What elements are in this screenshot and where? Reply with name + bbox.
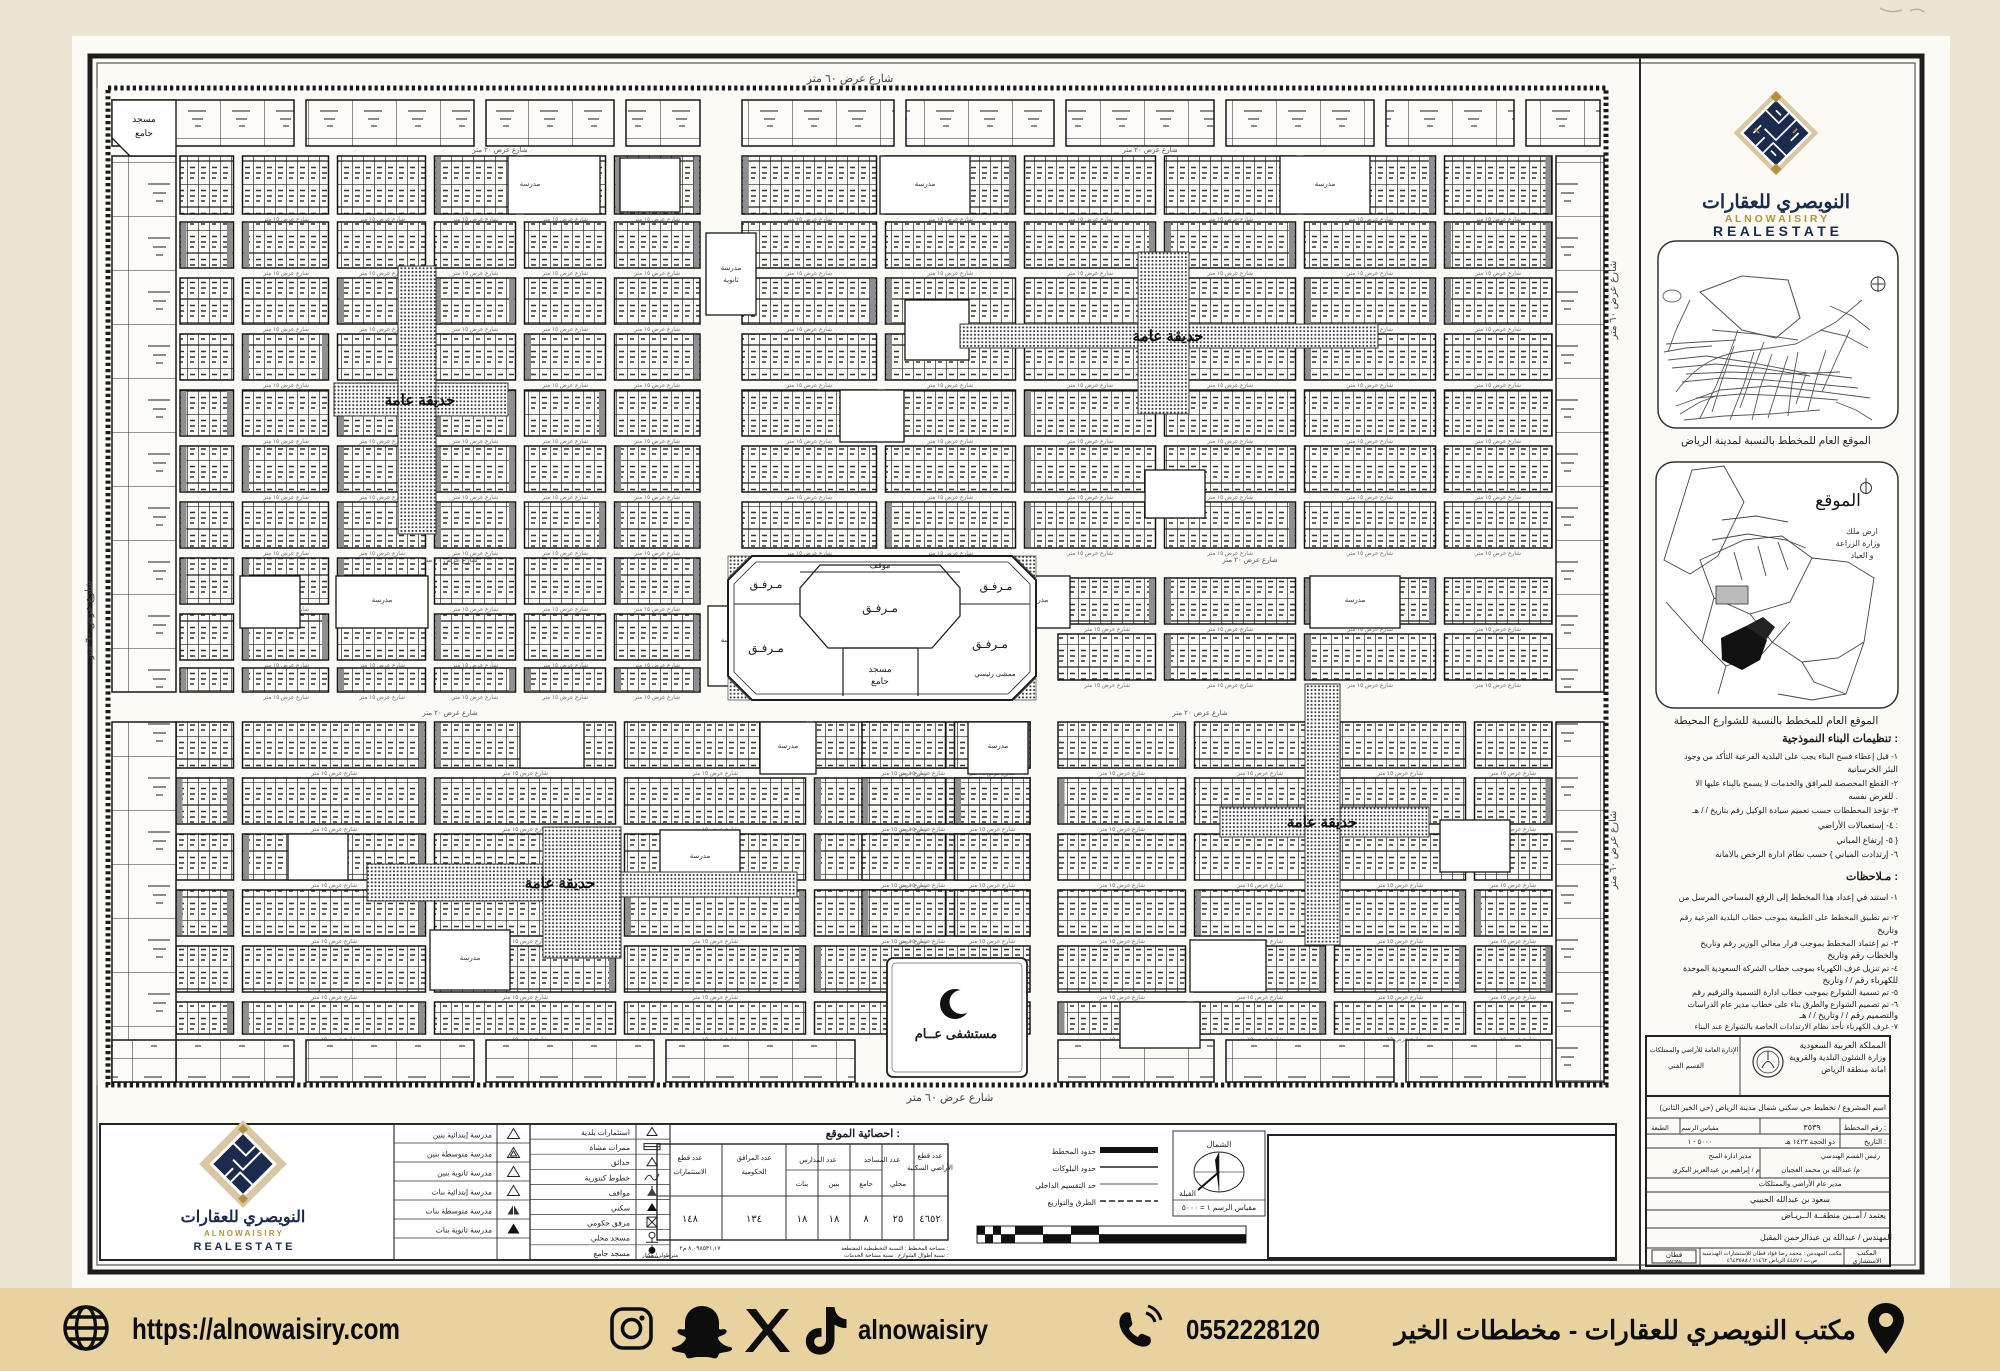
svg-text:شارع عرض ١٥ متر: شارع عرض ١٥ متر [541,326,588,333]
svg-text:شارع عرض ١٥ متر: شارع عرض ١٥ متر [1346,550,1393,557]
svg-text:الطبعة: الطبعة [1651,1124,1669,1132]
svg-text:١٣٤: ١٣٤ [746,1214,762,1225]
svg-text:شارع عرض ١٥ متر: شارع عرض ١٥ متر [633,382,680,389]
svg-text:احصائية الموقع :: احصائية الموقع : [826,1128,900,1140]
svg-text:مدرسة: مدرسة [690,853,711,860]
svg-text:مدرسة: مدرسة [1315,181,1336,188]
svg-text:شارع عرض ١٥ متر: شارع عرض ١٥ متر [1083,682,1130,689]
svg-text:٥٠٠٠ - ١: ٥٠٠٠ - ١ [1687,1139,1712,1146]
svg-text:شارع عرض ٦٠ متر: شارع عرض ٦٠ متر [906,1092,994,1104]
svg-text:شارع عرض ١٥ متر: شارع عرض ١٥ متر [451,270,498,277]
svg-text:٣- تؤخذ المخططات حسب تعميم سيا: ٣- تؤخذ المخططات حسب تعميم سيادة الوكيل … [1691,806,1898,815]
svg-text:وزارة الشئون البلدية والقروية: وزارة الشئون البلدية والقروية [1789,1053,1886,1062]
svg-text:عدد قطع: عدد قطع [678,1154,703,1162]
svg-text:مدرسة: مدرسة [460,955,481,962]
svg-text:حديقة عامة: حديقة عامة [385,392,456,409]
svg-text:مـرفـق: مـرفـق [750,579,783,591]
svg-text:شارع عرض ١٥ متر: شارع عرض ١٥ متر [785,494,832,501]
svg-text:شارع عرض ١٥ متر: شارع عرض ١٥ متر [451,438,498,445]
svg-text:مسجد: مسجد [132,114,156,124]
svg-text:شارع عرض ١٥ متر: شارع عرض ١٥ متر [358,550,405,557]
svg-text:شارع عرض ١٥ متر: شارع عرض ١٥ متر [451,494,498,501]
svg-text:الإدارة العامة للأراضي والممتل: الإدارة العامة للأراضي والممتلكات [1650,1045,1739,1054]
svg-text:شارع عرض ١٥ متر: شارع عرض ١٥ متر [1474,494,1521,501]
svg-text:شارع عرض ١٥ متر: شارع عرض ١٥ متر [1098,770,1145,777]
svg-text:شارع عرض ١٥ متر: شارع عرض ١٥ متر [691,938,738,945]
svg-text:شارع عرض ١٥ متر: شارع عرض ١٥ متر [1206,682,1253,689]
svg-text:حدود المخطط: حدود المخطط [1052,1147,1097,1156]
svg-text:القبلة: القبلة [1179,1189,1196,1198]
svg-text:ممرات مشاة: ممرات مشاة [589,1143,630,1152]
svg-text:الموقع: الموقع [1815,491,1861,511]
svg-text:شارع عرض ٢٠ متر: شارع عرض ٢٠ متر [421,709,477,717]
svg-text:للكهرباء رقم / / وتار: للكهرباء رقم / / وتاريخ [1822,975,1898,985]
svg-text:٨: ٨ [863,1214,869,1225]
svg-text:شارع عرض ١٥ متر: شارع عرض ١٥ متر [1098,938,1145,945]
svg-text:شارع عرض ١٥ متر: شارع عرض ١٥ متر [1376,770,1423,777]
svg-text:المهندس / عبدالله بن عبدالرحمن: المهندس / عبدالله بن عبدالرحمن المقبل [1760,1233,1892,1242]
svg-text:شارع عرض ١٥ متر: شارع عرض ١٥ متر [785,438,832,445]
svg-text:شارع عرض ١٥ متر: شارع عرض ١٥ متر [1236,994,1283,1001]
svg-text:مدرسة: مدرسة [778,743,799,750]
svg-text:شارع عرض ١٥ متر: شارع عرض ١٥ متر [1489,882,1536,889]
svg-text:شارع عرض ١٥ متر: شارع عرض ١٥ متر [880,882,927,889]
svg-text:شارع عرض ١٥ متر: شارع عرض ١٥ متر [1236,770,1283,777]
svg-text:حد التقسيم الداخلي: حد التقسيم الداخلي [1035,1181,1096,1190]
svg-text:شارع عرض ١٥ متر: شارع عرض ١٥ متر [262,270,309,277]
svg-text:مدرسة إبتدائية بنات: مدرسة إبتدائية بنات [431,1188,492,1197]
svg-text:شارع عرض ٢٠ متر: شارع عرض ٢٠ متر [471,146,527,154]
svg-text:بنات: بنات [796,1180,809,1188]
svg-text:و العياد: و العياد [1850,551,1873,560]
svg-text:٢٥: ٢٥ [893,1214,904,1225]
svg-text:المملكة العربية السعودية: المملكة العربية السعودية [1799,1040,1886,1051]
svg-text:اسم المشروع / تخطيط حي سكني شم: اسم المشروع / تخطيط حي سكني شمال مدينة ا… [1660,1103,1886,1112]
svg-text:شارع عرض ١٥ متر: شارع عرض ١٥ متر [451,550,498,557]
svg-text:شارع عرض ١٥ متر: شارع عرض ١٥ متر [633,438,680,445]
svg-text:شارع عرض ١٥ متر: شارع عرض ١٥ متر [1489,770,1536,777]
svg-text:٥- إرتفاع المباني }: ٥- إرتفاع المباني } [1836,835,1898,845]
svg-text:شارع عرض ١٥ متر: شارع عرض ١٥ متر [1346,438,1393,445]
svg-text:شارع عرض ١٥ متر: شارع عرض ١٥ متر [262,550,309,557]
svg-text:شارع عرض ١٥ متر: شارع عرض ١٥ متر [310,994,357,1001]
svg-text:ثانوية: ثانوية [723,276,738,284]
svg-text:حديقة عامة: حديقة عامة [525,875,596,892]
svg-text:مرفق حكومي: مرفق حكومي [587,1219,630,1228]
svg-text:٧- غرف الكهرباء تأخذ نظام الار: ٧- غرف الكهرباء تأخذ نظام الارتدادات الخ… [1695,1020,1899,1031]
svg-text:https://alnowaisiry.com: https://alnowaisiry.com [132,1313,400,1346]
svg-text:مدرسة متوسطة بنين: مدرسة متوسطة بنين [427,1150,492,1159]
svg-text:شارع عرض ١٥ متر: شارع عرض ١٥ متر [1346,494,1393,501]
svg-text:شارع عرض ١٥ متر: شارع عرض ١٥ متر [1376,938,1423,945]
svg-text:شارع عرض ١٥ متر: شارع عرض ١٥ متر [691,994,738,1001]
svg-text:شارع عرض ١٥ متر: شارع عرض ١٥ متر [1376,882,1423,889]
svg-text:١٨: ١٨ [829,1214,840,1225]
svg-text:شارع عرض ١٥ متر: شارع عرض ١٥ متر [1474,682,1521,689]
svg-text:R E A L E S T A T E: R E A L E S T A T E [1713,223,1839,239]
svg-text:النويصري للعقارات: النويصري للعقارات [1702,192,1850,214]
svg-text:alnowaisiry: alnowaisiry [858,1314,988,1345]
svg-text:موقف: موقف [870,561,891,570]
svg-text:بنين: بنين [828,1181,839,1188]
svg-text:شارع عرض ١٥ متر: شارع عرض ١٥ متر [880,770,927,777]
svg-text:شارع عرض ١٥ متر: شارع عرض ١٥ متر [926,438,973,445]
svg-text:مقياس الرسم: مقياس الرسم [1681,1124,1719,1132]
svg-text:شارع عرض ١٥ متر: شارع عرض ١٥ متر [633,606,680,613]
svg-text:والتصميم رقم / / وتاريخ: والتصميم رقم / / وتاريخ / / هـ [1799,1010,1898,1020]
svg-text:شارع عرض ١٥ متر: شارع عرض ١٥ متر [1474,326,1521,333]
svg-text:٣- تم إعتماد المخطط بموجب قرار: ٣- تم إعتماد المخطط بموجب قرار معالي الو… [1700,939,1898,948]
svg-text:شارع عرض ١٥ متر: شارع عرض ١٥ متر [501,826,548,833]
svg-text:١٤٨: ١٤٨ [682,1214,699,1225]
svg-text:مستشفى عــام: مستشفى عــام [915,1026,998,1042]
svg-text:R E A L E S T A T E: R E A L E S T A T E [193,1241,292,1253]
svg-text:الموقع العام للمخطط بالنسبة لم: الموقع العام للمخطط بالنسبة لمدينة الريا… [1681,435,1871,447]
svg-text:شارع عرض ١٥ متر: شارع عرض ١٥ متر [926,270,973,277]
svg-text:شارع عرض ١٥ متر: شارع عرض ١٥ متر [1066,270,1113,277]
svg-text:البئر الخرسانية: البئر الخرسانية [1847,764,1898,774]
svg-text:مسجد: مسجد [868,664,892,674]
svg-text:شارع عرض ٢٠ متر: شارع عرض ٢٠ متر [1221,556,1277,564]
svg-text:عدد المدارس: عدد المدارس [799,1156,836,1164]
svg-text:مـرفـق: مـرفـق [748,641,784,655]
svg-text:شارع عرض ١٥ متر: شارع عرض ١٥ متر [633,550,680,557]
svg-text:٥- تم تسمية الشوارع بموجب خطاب: ٥- تم تسمية الشوارع بموجب خطاب ادارة الت… [1692,988,1898,997]
svg-text:شارع عرض ١٥ متر: شارع عرض ١٥ متر [1206,382,1253,389]
svg-text:مدرسة متوسطة بنات: مدرسة متوسطة بنات [426,1207,492,1216]
svg-text:شارع عرض ١٥ متر: شارع عرض ١٥ متر [1083,626,1130,633]
svg-text:٢- تم تطبيق المخطط على الطبيعة: ٢- تم تطبيق المخطط على الطبيعة بموجب خطا… [1680,913,1898,922]
svg-text:شارع عرض ١٥ متر: شارع عرض ١٥ متر [1474,382,1521,389]
svg-text:شارع عرض ١٥ متر: شارع عرض ١٥ متر [691,770,738,777]
svg-text:حديقة عامة: حديقة عامة [1133,328,1204,345]
svg-text:شارع عرض ١٥ متر: شارع عرض ١٥ متر [880,938,927,945]
svg-text:شارع عرض ١٥ متر: شارع عرض ١٥ متر [451,694,498,701]
svg-text:٢- القطع المخصصة للمرافق والخد: ٢- القطع المخصصة للمرافق والخدمات لا يسم… [1695,779,1898,788]
svg-text:شارع عرض ٢٠ متر: شارع عرض ٢٠ متر [1171,709,1227,717]
svg-text:شارع عرض ١٥ متر: شارع عرض ١٥ متر [926,382,973,389]
svg-text:شارع عرض ٢٠ متر: شارع عرض ٢٠ متر [1121,146,1177,154]
svg-text:شارع عرض ١٥ متر: شارع عرض ١٥ متر [1066,382,1113,389]
svg-text:الشمال: الشمال [1207,1140,1232,1149]
svg-text:شارع عرض ١٥ متر: شارع عرض ١٥ متر [1206,626,1253,633]
svg-text:القسم الفني: القسم الفني [1668,1062,1704,1070]
svg-text:شارع عرض ١٥ متر: شارع عرض ١٥ متر [1346,270,1393,277]
svg-text:للغرض نفسه .: للغرض نفسه . [1848,791,1898,801]
svg-text:شارع عرض ١٥ متر: شارع عرض ١٥ متر [633,326,680,333]
svg-text:شارع عرض ١٥ متر: شارع عرض ١٥ متر [633,270,680,277]
svg-text:شارع عرض ١٥ متر: شارع عرض ١٥ متر [262,694,309,701]
svg-text:شارع عرض ١٥ متر: شارع عرض ١٥ متر [1098,994,1145,1001]
svg-text:شارع عرض ١٥ متر: شارع عرض ١٥ متر [1474,550,1521,557]
svg-text:جامع: جامع [859,1180,873,1188]
svg-text:شارع عرض ١٥ متر: شارع عرض ١٥ متر [262,326,309,333]
svg-text:مدرسة: مدرسة [372,597,393,604]
svg-text:عدد المساجد: عدد المساجد [864,1156,900,1164]
svg-text:مدير ادارة المنح: مدير ادارة المنح [1709,1152,1752,1160]
svg-text:مدرسة: مدرسة [520,181,541,188]
svg-text:شارع عرض ١٥ متر: شارع عرض ١٥ متر [310,882,357,889]
svg-text:التاريخ :: التاريخ : [1864,1138,1886,1146]
svg-text:٨,٠٩٨٥٣١,١٧ م٢: ٨,٠٩٨٥٣١,١٧ م٢ [680,1246,722,1252]
svg-text:١- استند في إعداد هذا المخطط إ: ١- استند في إعداد هذا المخطط إلى الرفع ا… [1679,892,1898,902]
svg-text:الموقع العام للمخطط بالنسبة لل: الموقع العام للمخطط بالنسبة للشوارع المح… [1674,715,1879,727]
svg-text:ارض ملك: ارض ملك [1846,527,1878,536]
svg-text:شارع عرض ٢٠ متر: شارع عرض ٢٠ متر [421,556,477,564]
svg-text:مـرفـق: مـرفـق [980,581,1013,593]
svg-text:شارع عرض ١٥ متر: شارع عرض ١٥ متر [968,882,1015,889]
svg-text:شارع عرض ٦٠ متر: شارع عرض ٦٠ متر [84,581,95,661]
svg-text:٦- إرتدادت المباني } حسب نظ: ٦- إرتدادت المباني } حسب نظام ادارة الرخ… [1715,849,1898,859]
svg-text:مواقف: مواقف [609,1188,630,1197]
svg-text:شارع عرض ١٥ متر: شارع عرض ١٥ متر [1206,494,1253,501]
svg-text:شارع عرض ١٥ متر: شارع عرض ١٥ متر [1206,270,1253,277]
svg-text:مساحة المخطط : النسبة التخطيط: مساحة المخطط : النسبة التخطيطية المقتطعة… [841,1245,948,1252]
svg-text:سكني: سكني [611,1204,631,1213]
svg-text:مدرسة: مدرسة [1345,597,1366,604]
svg-text:شارع عرض ١٥ متر: شارع عرض ١٥ متر [358,694,405,701]
svg-text:شارع عرض ١٥ متر: شارع عرض ١٥ متر [1346,382,1393,389]
svg-text:١٨: ١٨ [797,1214,808,1225]
svg-text:شارع عرض ١٥ متر: شارع عرض ١٥ متر [1098,882,1145,889]
svg-text:شارع عرض ١٥ متر: شارع عرض ١٥ متر [262,438,309,445]
svg-text:شارع عرض ١٥ متر: شارع عرض ١٥ متر [1206,438,1253,445]
svg-text:مكتب المهندس : محمد رضا فؤاد ق: مكتب المهندس : محمد رضا فؤاد قطان للإستش… [1702,1250,1842,1257]
svg-text:شارع عرض ١٥ متر: شارع عرض ١٥ متر [310,938,357,945]
svg-text:شارع عرض ١٥ متر: شارع عرض ١٥ متر [1489,938,1536,945]
svg-text:جامع: جامع [135,128,153,139]
svg-text:شارع عرض ١٥ متر: شارع عرض ١٥ متر [633,494,680,501]
svg-text:مدرسة ثانوية بنات: مدرسة ثانوية بنات [436,1226,492,1235]
svg-text:شارع عرض ١٥ متر: شارع عرض ١٥ متر [501,994,548,1001]
svg-text:شارع عرض ١٥ متر: شارع عرض ١٥ متر [541,438,588,445]
svg-text:محلي: محلي [890,1180,906,1188]
svg-text:مسجد جامع: مسجد جامع [593,1249,630,1258]
svg-text:KATTAN: KATTAN [1666,1259,1681,1264]
svg-text:شارع عرض ١٥ متر: شارع عرض ١٥ متر [1236,882,1283,889]
svg-text:تنظيمات البناء النموذجية :: تنظيمات البناء النموذجية : [1782,733,1898,745]
svg-text:المكتب: المكتب [1857,1249,1877,1257]
svg-text:شارع عرض ١٥ متر: شارع عرض ١٥ متر [968,938,1015,945]
svg-text:ذو الحجة ١٤٢٣ هـ: ذو الحجة ١٤٢٣ هـ [1784,1138,1835,1146]
svg-text:شارع عرض ١٥ متر: شارع عرض ١٥ متر [541,494,588,501]
svg-text:مـرفـق: مـرفـق [862,601,898,615]
svg-text:يعتمد / أمــين منطقــة الــر: يعتمد / أمــين منطقــة الــريـاض [1781,1209,1886,1220]
svg-text:وتاريخ: وتاريخ [1877,925,1898,935]
svg-text:شارع عرض ١٥ متر: شارع عرض ١٥ متر [262,382,309,389]
svg-text:استثمارات بلدية: استثمارات بلدية [581,1128,630,1137]
svg-text:مسجد محلي: مسجد محلي [591,1234,630,1243]
svg-text:خطوط كنتورية: خطوط كنتورية [585,1173,631,1182]
svg-text:شارع عرض ١٥ متر: شارع عرض ١٥ متر [968,826,1015,833]
svg-text:شارع عرض ١٥ متر: شارع عرض ١٥ متر [501,770,548,777]
svg-text:شارع عرض ١٥ متر: شارع عرض ١٥ متر [262,494,309,501]
svg-text:سعود بن عبدالله الحبيبي: سعود بن عبدالله الحبيبي [1750,1195,1830,1204]
svg-text:امانة منطقة الرياض: امانة منطقة الرياض [1821,1065,1886,1074]
svg-text:شارع عرض ٦٠ متر: شارع عرض ٦٠ متر [1608,261,1619,341]
svg-text:٤٦٥٢: ٤٦٥٢ [919,1214,940,1225]
svg-text:شارع عرض ١٥ متر: شارع عرض ١٥ متر [451,606,498,613]
svg-text:شارع عرض ١٥ متر: شارع عرض ١٥ متر [541,270,588,277]
svg-text:شارع عرض ١٥ متر: شارع عرض ١٥ متر [1098,826,1145,833]
svg-text:شارع عرض ٦٠ متر: شارع عرض ٦٠ متر [1608,811,1619,891]
svg-text:مترطولي/ هكتار: مترطولي/ هكتار [641,1252,678,1259]
svg-text:الحكومية: الحكومية [742,1168,767,1176]
svg-text:حدائق: حدائق [611,1158,630,1167]
svg-text:الاستشاري: الاستشاري [1853,1257,1882,1265]
svg-text:شارع عرض ١٥ متر: شارع عرض ١٥ متر [541,694,588,701]
svg-text:مكتب النويصري للعقارات - مخططا: مكتب النويصري للعقارات - مخططات الخير [1392,1315,1856,1346]
svg-text:شارع عرض ١٥ متر: شارع عرض ١٥ متر [541,382,588,389]
svg-text:حديقة عامة: حديقة عامة [1287,814,1358,831]
svg-text:شارع عرض ١٥ متر: شارع عرض ١٥ متر [785,326,832,333]
svg-text:مدرسة ثانوية بنين: مدرسة ثانوية بنين [437,1169,492,1178]
svg-text:٣٥٣٩: ٣٥٣٩ [1803,1123,1820,1132]
svg-text:شارع عرض ١٥ متر: شارع عرض ١٥ متر [1474,270,1521,277]
svg-text:مـلاحظات :: مـلاحظات : [1846,871,1898,883]
svg-text:شارع عرض ١٥ متر: شارع عرض ١٥ متر [785,270,832,277]
svg-text:0552228120: 0552228120 [1186,1314,1320,1345]
svg-text:شارع عرض ١٥ متر: شارع عرض ١٥ متر [1489,994,1536,1001]
svg-text:مدرسة إبتدائية بنين: مدرسة إبتدائية بنين [433,1131,492,1140]
svg-text:٤- إستعمالات الأراضي :: ٤- إستعمالات الأراضي : [1818,820,1898,830]
svg-text:شارع عرض ١٥ متر: شارع عرض ١٥ متر [926,494,973,501]
svg-text:ممشى رئيسي: ممشى رئيسي [974,670,1016,678]
svg-text:شارع عرض ١٥ متر: شارع عرض ١٥ متر [541,606,588,613]
svg-text:جامع: جامع [871,676,889,687]
svg-text:رئيس القسم الهندسي: رئيس القسم الهندسي [1821,1152,1880,1160]
svg-text:شارع عرض ١٥ متر: شارع عرض ١٥ متر [1474,626,1521,633]
svg-text:شارع عرض ١٥ متر: شارع عرض ١٥ متر [451,326,498,333]
svg-text:شارع عرض ١٥ متر: شارع عرض ١٥ متر [1346,682,1393,689]
svg-text:مدرسة: مدرسة [988,743,1009,750]
svg-text:مقياس الرسم ١ = ٥٠٠٠: مقياس الرسم ١ = ٥٠٠٠ [1182,1203,1256,1212]
svg-text:والخطاب رقم وتاريخ: والخطاب رقم وتاريخ [1827,950,1898,960]
svg-text:شارع عرض ١٥ متر: شارع عرض ١٥ متر [1474,438,1521,445]
svg-text:٤- تم تنزيل غرف الكهرباء بموجب: ٤- تم تنزيل غرف الكهرباء بموجب خطاب الشر… [1683,964,1898,973]
svg-text:شارع عرض ١٥ متر: شارع عرض ١٥ متر [1206,550,1253,557]
svg-text:رقم المخطط :: رقم المخطط : [1844,1124,1886,1132]
svg-text:٦- تم تصميم الشوارع والطرق بنا: ٦- تم تصميم الشوارع والطرق بناء على خطاب… [1687,1000,1898,1009]
svg-text:مدرسة: مدرسة [721,265,742,272]
svg-text:مدرسة: مدرسة [915,181,936,188]
svg-text:م / إبراهيم بن عبدالعزيز البكر: م / إبراهيم بن عبدالعزيز البكري [1672,1166,1759,1174]
svg-text:١- قبل إعطاء فسح البناء يجب عل: ١- قبل إعطاء فسح البناء يجب على البلدية … [1684,750,1898,761]
svg-text:الطرق والتوازيع: الطرق والتوازيع [1048,1198,1096,1207]
svg-text:شارع عرض ١٥ متر: شارع عرض ١٥ متر [310,826,357,833]
svg-text:شارع عرض ١٥ متر: شارع عرض ١٥ متر [880,826,927,833]
svg-text:شارع عرض ١٥ متر: شارع عرض ١٥ متر [541,550,588,557]
svg-text:شارع عرض ١٥ متر: شارع عرض ١٥ متر [1376,994,1423,1001]
svg-text:A L N O W A I S I R Y: A L N O W A I S I R Y [204,1229,283,1238]
svg-text:عدد قطع: عدد قطع [918,1152,943,1160]
svg-text:شارع عرض ١٥ متر: شارع عرض ١٥ متر [1066,438,1113,445]
svg-text:الاستثمارات: الاستثمارات [673,1168,706,1176]
svg-text:شارع عرض ١٥ متر: شارع عرض ١٥ متر [1066,494,1113,501]
svg-text:النويصري للعقارات: النويصري للعقارات [181,1209,306,1227]
svg-text:وزارة الزراعة: وزارة الزراعة [1836,539,1881,548]
svg-text:شارع عرض ٦٠ متر: شارع عرض ٦٠ متر [806,73,894,85]
svg-text:شارع عرض ١٥ متر: شارع عرض ١٥ متر [785,382,832,389]
svg-text:شارع عرض ١٥ متر: شارع عرض ١٥ متر [1066,550,1113,557]
svg-text:عدد المرافق: عدد المرافق [737,1154,772,1162]
svg-text:شارع عرض ١٥ متر: شارع عرض ١٥ متر [310,770,357,777]
svg-text:ص.ب / ٤٤٥٧ الرياض ١١٤٦٢ / ٤٦٤٣: ص.ب / ٤٤٥٧ الرياض ١١٤٦٢ / ٤٦٤٣٥٨٨ [1727,1257,1818,1264]
svg-text:شارع عرض ١٥ متر: شارع عرض ١٥ متر [633,694,680,701]
svg-text:م/ عبدالله بن محمد العجيان: م/ عبدالله بن محمد العجيان [1781,1166,1860,1174]
svg-text:مـرفـق: مـرفـق [972,637,1008,651]
svg-text:حدود البلوكات: حدود البلوكات [1052,1164,1096,1173]
